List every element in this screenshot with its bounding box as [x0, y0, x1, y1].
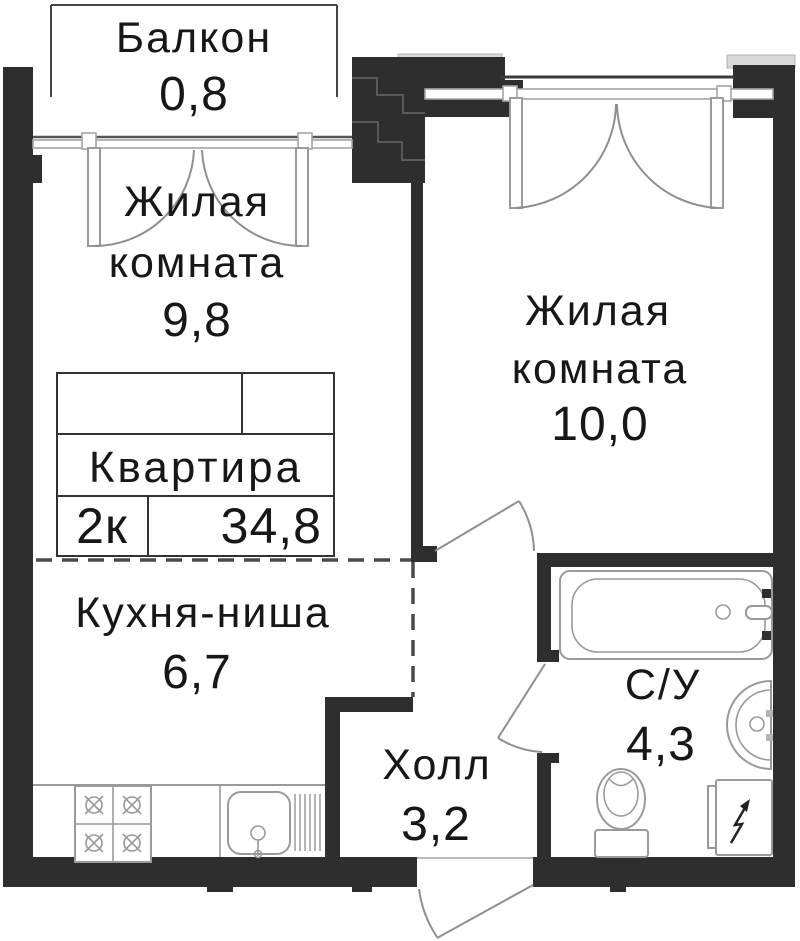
living-room-2-label-line2: комната [512, 345, 689, 393]
bathroom-area: 4,3 [626, 718, 696, 771]
kitchen-area: 6,7 [162, 646, 232, 699]
living-room-2-area: 10,0 [551, 398, 648, 451]
living-room-1-label-line1: Жилая [124, 178, 270, 226]
bathroom-label-group: С/У 4,3 [625, 661, 701, 771]
title-block-total-area: 34,8 [221, 498, 322, 554]
living2-door-arc [435, 501, 534, 551]
title-block-label: Квартира [89, 443, 303, 492]
living-room-1-label-line2: комната [109, 239, 286, 287]
balcony-area: 0,8 [159, 68, 229, 121]
hall-label: Холл [382, 741, 491, 789]
living-room-2-label-group: Жилая комната 10,0 [512, 287, 689, 451]
bathroom-door-arc [498, 664, 545, 752]
dish-rack-icon [295, 794, 320, 851]
kitchen-label: Кухня-ниша [75, 589, 331, 637]
kitchen-sink-icon [228, 792, 290, 858]
title-block-rooms-count: 2к [76, 498, 128, 554]
floor-plan: Квартира 2к 34,8 Балкон 0,8 Жилая комнат… [0, 0, 800, 941]
living-room-1-area: 9,8 [162, 294, 232, 347]
bathtub-icon [560, 571, 772, 659]
toilet-icon [595, 769, 648, 857]
hall-label-group: Холл 3,2 [382, 741, 491, 851]
window-french-door [425, 77, 773, 208]
kitchen-label-group: Кухня-ниша 6,7 [75, 589, 331, 699]
living-room-1-label-group: Жилая комната 9,8 [109, 178, 286, 347]
title-block: Квартира 2к 34,8 [57, 373, 334, 556]
hall-area: 3,2 [401, 798, 471, 851]
living-room-2-label-line1: Жилая [525, 287, 671, 335]
bathroom-label: С/У [625, 661, 701, 709]
balcony-label-group: Балкон 0,8 [116, 14, 272, 121]
entry-door-arc [417, 858, 533, 938]
bathroom-sink-icon [727, 681, 773, 769]
stove-icon [75, 786, 151, 862]
balcony-label: Балкон [116, 14, 272, 62]
electric-panel-icon [708, 780, 772, 855]
